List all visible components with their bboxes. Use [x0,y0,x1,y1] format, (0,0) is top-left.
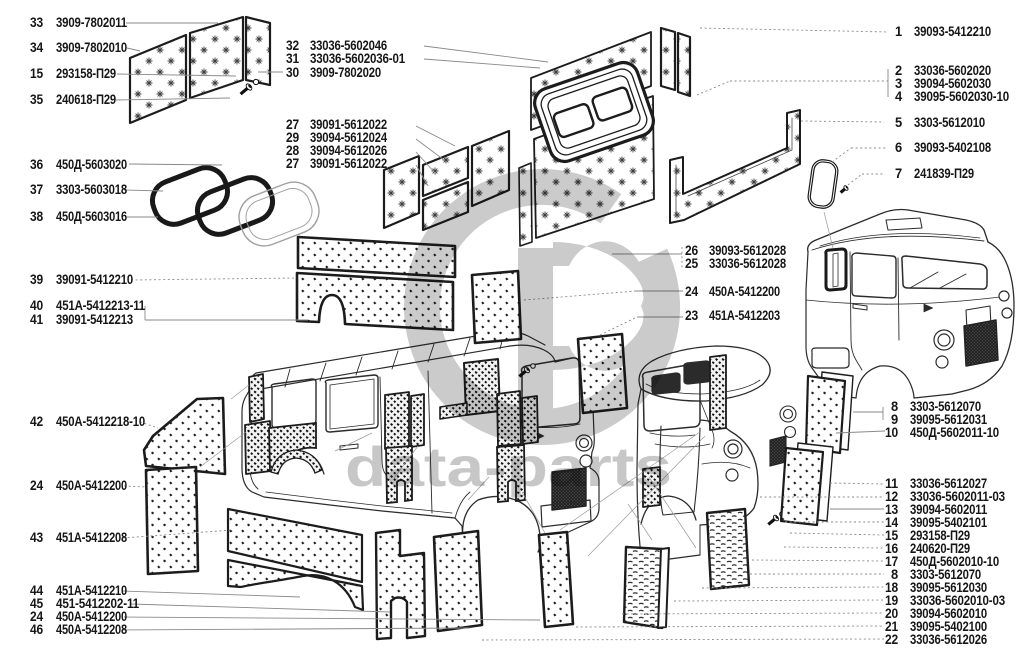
svg-text:3909-7802010: 3909-7802010 [56,40,127,55]
svg-text:33036-5602036-01: 33036-5602036-01 [310,51,406,66]
svg-text:451А-5412213-11: 451А-5412213-11 [56,298,146,313]
svg-text:3303-5603018: 3303-5603018 [56,182,128,197]
svg-text:451А-5412203: 451А-5412203 [709,308,781,323]
svg-text:10: 10 [885,425,898,440]
svg-text:30: 30 [286,65,299,80]
svg-text:39091-5612022: 39091-5612022 [310,156,387,171]
svg-text:39093-5402108: 39093-5402108 [914,140,992,155]
svg-text:5: 5 [895,115,903,130]
svg-text:3909-7802020: 3909-7802020 [310,65,381,80]
svg-text:7: 7 [895,166,902,181]
svg-text:39091-5412213: 39091-5412213 [56,312,134,327]
svg-text:450А-5412200: 450А-5412200 [56,478,127,493]
svg-text:41: 41 [30,312,44,327]
svg-text:15: 15 [30,66,44,81]
svg-text:293158-П29: 293158-П29 [56,66,116,81]
svg-text:38: 38 [30,209,44,224]
svg-text:450А-5412200: 450А-5412200 [709,284,780,299]
svg-text:42: 42 [30,414,43,429]
svg-text:450Д-5602011-10: 450Д-5602011-10 [910,425,999,440]
svg-text:46: 46 [30,622,44,637]
svg-text:37: 37 [30,182,43,197]
svg-text:22: 22 [885,632,898,647]
svg-text:23: 23 [685,308,699,323]
svg-text:240618-П29: 240618-П29 [56,92,116,107]
svg-text:39093-5412210: 39093-5412210 [914,24,991,39]
svg-text:39: 39 [30,272,43,287]
svg-text:39095-5602030-10: 39095-5602030-10 [914,89,1009,104]
svg-text:33036-5612028: 33036-5612028 [709,256,787,271]
svg-text:39091-5412210: 39091-5412210 [56,272,133,287]
svg-text:24: 24 [30,478,44,493]
svg-text:3303-5612010: 3303-5612010 [914,115,985,130]
svg-text:31: 31 [286,51,300,66]
svg-text:40: 40 [30,298,43,313]
svg-text:1: 1 [895,24,903,39]
svg-text:4: 4 [895,89,903,104]
svg-text:450Д-5603020: 450Д-5603020 [56,157,127,172]
svg-text:36: 36 [30,157,44,172]
svg-text:43: 43 [30,530,44,545]
svg-text:34: 34 [30,40,44,55]
svg-text:241839-П29: 241839-П29 [914,166,974,181]
svg-text:33036-5612026: 33036-5612026 [910,632,988,647]
svg-text:27: 27 [286,156,299,171]
svg-text:450Д-5603016: 450Д-5603016 [56,209,128,224]
svg-text:3909-7802011: 3909-7802011 [56,15,128,30]
svg-text:35: 35 [30,92,44,107]
svg-text:450А-5412218-10: 450А-5412218-10 [56,414,145,429]
svg-text:6: 6 [895,140,903,155]
svg-text:25: 25 [685,256,699,271]
svg-text:33: 33 [30,15,44,30]
svg-text:451А-5412208: 451А-5412208 [56,530,128,545]
svg-text:450А-5412208: 450А-5412208 [56,622,128,637]
svg-text:24: 24 [685,284,699,299]
svg-text:data-parts: data-parts [345,435,672,498]
